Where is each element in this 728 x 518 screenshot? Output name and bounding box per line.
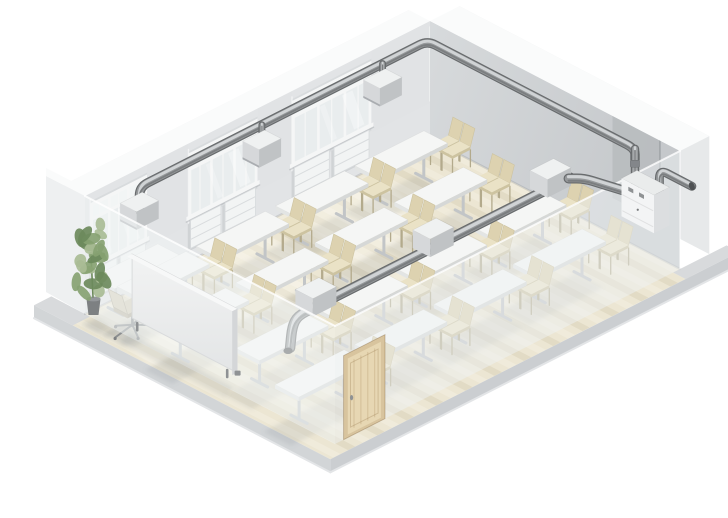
classroom-ventilation-illustration [0, 0, 728, 518]
scene-canvas [0, 0, 728, 518]
